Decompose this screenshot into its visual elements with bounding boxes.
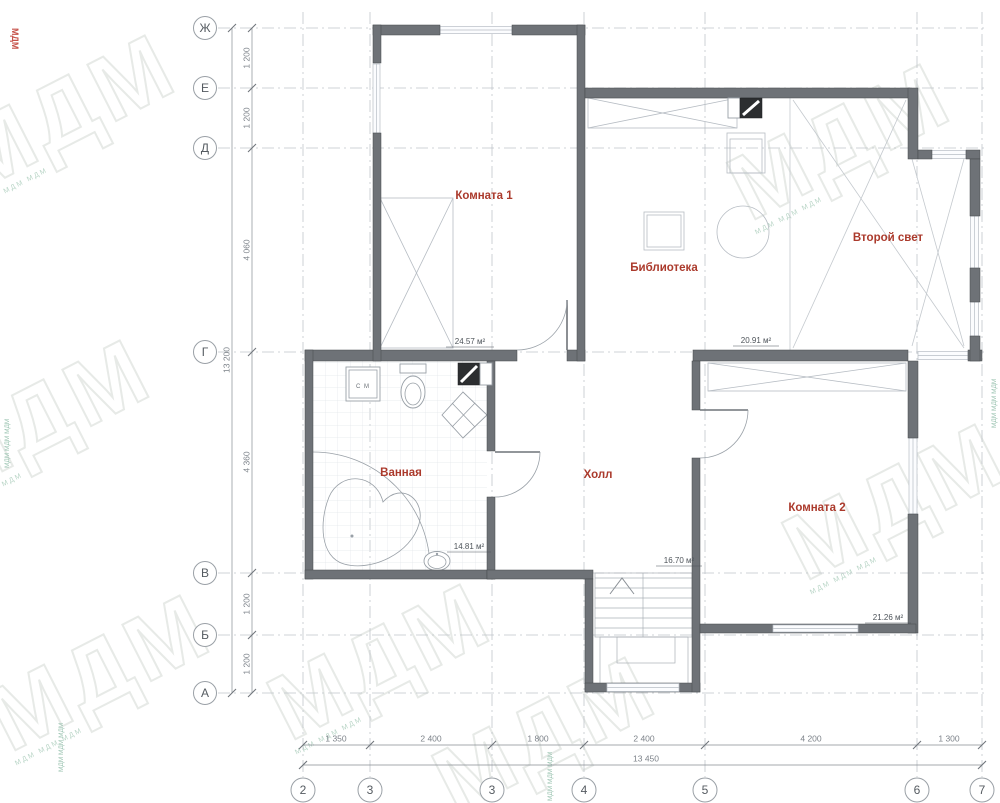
doors: [495, 300, 748, 497]
room-area-vannaya: 14.81 м²: [454, 542, 485, 551]
library-chair-2: [644, 212, 684, 250]
dim-left-seg-4: 1 200: [242, 593, 252, 615]
axis-row-d: Д: [194, 137, 217, 160]
dim-left-seg-3: 4 360: [242, 451, 252, 473]
axis-row-g: Г: [194, 341, 217, 364]
dim-left-total: 13 200: [222, 347, 232, 373]
svg-text:Е: Е: [201, 81, 209, 95]
svg-text:2: 2: [300, 783, 307, 797]
svg-text:Д: Д: [201, 141, 209, 155]
dim-bottom-seg-1: 2 400: [420, 734, 442, 744]
wardrobe-room2: [708, 363, 906, 391]
wardrobe-library: [588, 98, 737, 128]
dim-left-seg-0: 1 200: [242, 47, 252, 69]
window: [607, 684, 679, 692]
axis-row-v: В: [194, 562, 217, 585]
room-label-biblioteka: Библиотека: [630, 262, 698, 274]
vent-shafts: [458, 98, 762, 385]
watermark-logo: МДМ: [0, 319, 167, 516]
axis-row-a: А: [194, 682, 217, 705]
watermark-layer: МДММДМ МДМ МДМ МДММДМ МДМ МДМ МДММДМ МДМ…: [0, 14, 1000, 803]
svg-text:В: В: [201, 566, 209, 580]
window: [971, 302, 979, 336]
window: [440, 27, 512, 34]
axis-col-7: 7: [970, 778, 994, 802]
room-label-vannaya: Ванная: [380, 467, 422, 479]
svg-text:7: 7: [979, 783, 986, 797]
dim-left-seg-2: 4 060: [242, 239, 252, 261]
washing-machine: С М: [346, 367, 380, 401]
room-label-komnata2: Комната 2: [788, 502, 845, 514]
window: [918, 352, 968, 360]
window: [971, 216, 979, 268]
room-label-komnata1: Комната 1: [455, 190, 513, 202]
bathroom-tile-floor: [313, 361, 487, 570]
svg-text:6: 6: [914, 783, 921, 797]
room-area-biblioteka: 20.91 м²: [741, 336, 772, 345]
room-area-komnata2: 21.26 м²: [873, 613, 904, 622]
axis-col-6: 6: [905, 778, 929, 802]
window: [930, 151, 966, 159]
dim-bottom-seg-0: 1 350: [325, 734, 347, 744]
svg-text:Ж: Ж: [199, 21, 210, 35]
dim-bottom-seg-3: 2 400: [633, 734, 655, 744]
axis-row-zh: Ж: [194, 17, 217, 40]
dim-bottom-seg-4: 4 200: [800, 734, 822, 744]
dim-bottom-seg-2: 1 800: [527, 734, 549, 744]
floor-plan-canvas: МДММДМ МДМ МДМ МДММДМ МДМ МДМ МДММДМ МДМ…: [0, 0, 1000, 803]
stairs-up-arrow: [610, 578, 634, 594]
door-room1: [517, 300, 567, 350]
room-area-holl: 16.70 м²: [664, 556, 695, 565]
window: [773, 625, 858, 632]
watermark-edge-bottomleft: МДМ МДМ МДМ: [58, 723, 65, 772]
room-area-komnata1: 24.57 м²: [455, 337, 486, 346]
svg-text:Г: Г: [202, 345, 209, 359]
watermark-edge-bottom: МДМ МДМ МДМ: [547, 752, 554, 801]
room-label-holl: Холл: [584, 469, 613, 481]
watermark-edge-red: МДМ: [10, 28, 20, 49]
vent-shaft-bathroom: [458, 363, 492, 385]
watermark-edge-left: МДМ МДМ МДМ: [4, 419, 11, 468]
axis-col-5: 5: [693, 778, 717, 802]
dim-left-seg-5: 1 200: [242, 653, 252, 675]
svg-text:А: А: [201, 686, 209, 700]
axis-col-4: 4: [572, 778, 596, 802]
axis-col-2: 2: [291, 778, 315, 802]
washing-machine-label: С М: [356, 384, 370, 390]
svg-text:3: 3: [489, 783, 496, 797]
wardrobe-room1: [380, 198, 453, 348]
dim-bottom-total: 13 450: [633, 754, 659, 764]
window: [373, 64, 380, 133]
vent-shaft-library: [728, 98, 762, 118]
dim-bottom-seg-5: 1 300: [938, 734, 960, 744]
window: [909, 438, 917, 514]
axis-row-e: Е: [194, 77, 217, 100]
axis-col-3a: 3: [358, 778, 382, 802]
watermark-logo: МДМ: [0, 574, 227, 771]
svg-text:Б: Б: [201, 628, 209, 642]
watermark-edge-right: МДМ МДМ МДМ: [991, 379, 998, 428]
sink: [424, 552, 450, 571]
dim-left-seg-1: 1 200: [242, 107, 252, 129]
door-bathroom: [495, 452, 540, 497]
axis-col-3b: 3: [480, 778, 504, 802]
svg-text:4: 4: [581, 783, 588, 797]
watermark-logo: МДМ: [713, 43, 968, 240]
axis-row-b: Б: [194, 624, 217, 647]
room-label-vtoroy-svet: Второй свет: [853, 232, 924, 244]
svg-text:3: 3: [367, 783, 374, 797]
door-room2: [700, 410, 748, 458]
svg-text:5: 5: [702, 783, 709, 797]
toilet: [400, 364, 426, 408]
